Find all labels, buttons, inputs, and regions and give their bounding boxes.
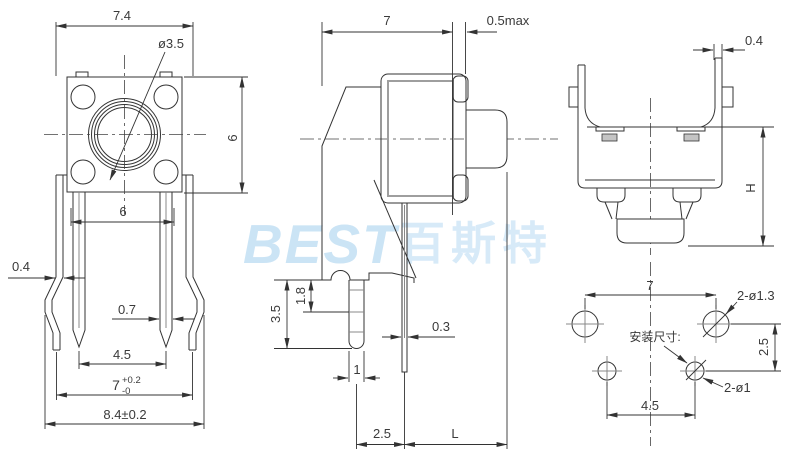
dim-cover-gap: 0.5max [466, 13, 530, 74]
callout-label-clip-holes: 2-ø1.3 [737, 288, 775, 303]
dim-wall-thickness: 0.4 [693, 33, 763, 60]
dim-pin-thickness: 0.3 [382, 319, 455, 337]
dim-row-spacing: 2.5 [706, 324, 781, 371]
dim-pin-hole-pitch: 4.5 [607, 382, 695, 419]
switch-body-inner [388, 81, 453, 196]
dim-label-leg-width: 1 [353, 362, 360, 377]
top-tab [76, 72, 88, 77]
watermark-chinese: 百斯特 [400, 218, 553, 269]
side-ear-left [569, 87, 578, 107]
dim-label-pin-pitch: 4.5 [113, 347, 131, 362]
dim-leg-width: 1 [333, 351, 380, 382]
dim-label-foot-span-tol-minus: -0 [122, 386, 130, 397]
dim-label-overall-width: 8.4±0.2 [103, 407, 146, 422]
clip-leg-left [45, 175, 67, 350]
dim-label-stem-height: H [743, 183, 758, 192]
clip-leg-right [182, 175, 204, 350]
dim-label-button-diameter: ø3.5 [158, 36, 184, 51]
corner-rivet [154, 85, 178, 109]
bracket-mount-leg [349, 280, 364, 349]
dim-label-pin-to-leg: 2.5 [373, 426, 391, 441]
top-view: 0.4 H [569, 33, 774, 255]
dim-pin-span: 6 [71, 204, 174, 226]
mounting-caption-label: 安装尺寸: [629, 329, 680, 344]
pin-right [160, 192, 172, 347]
plunger-top [617, 219, 684, 243]
dim-label-slot-depth: 1.8 [293, 287, 308, 305]
dim-pin-width: 0.7 [112, 302, 194, 319]
watermark: BEST 百斯特 [243, 213, 553, 275]
dim-bracket-depth: 3.5 [268, 280, 352, 349]
dim-body-height: 6 [184, 77, 248, 193]
dim-label-pin-width: 0.7 [118, 302, 136, 317]
plunger-side [466, 110, 507, 168]
dim-label-bracket-depth: 3.5 [268, 305, 283, 323]
technical-drawing: BEST 百斯特 [0, 0, 792, 454]
dim-slot-depth: 1.8 [293, 280, 349, 312]
feet-and-pins [597, 188, 701, 219]
dim-label-pin-span: 6 [119, 204, 126, 219]
dim-label-wall-thickness: 0.4 [745, 33, 763, 48]
dim-label-foot-span: 7 [112, 377, 120, 393]
dim-label-clip-thickness: 0.4 [12, 259, 30, 274]
corner-rivet [154, 160, 178, 184]
dim-label-body-width: 7 [383, 13, 390, 28]
pin-hole-right [680, 356, 710, 386]
mounting-caption: 安装尺寸: [629, 329, 687, 363]
dim-pin-pitch: 4.5 [79, 347, 166, 369]
mounting-layout: 7 2.5 4.5 2-ø1.3 2-ø1 安装尺寸: [566, 262, 781, 446]
corner-rivet [71, 160, 95, 184]
corner-rivet [71, 85, 95, 109]
dim-label-foot-span-tol-plus: +0.2 [122, 375, 141, 386]
callout-clip-holes: 2-ø1.3 [726, 288, 775, 314]
top-tab [160, 72, 172, 77]
dim-label-pin-thickness: 0.3 [432, 319, 450, 334]
dim-label-clip-hole-pitch: 7 [646, 278, 653, 293]
dim-label-pin-hole-pitch: 4.5 [641, 398, 659, 413]
side-ear-right [722, 87, 733, 107]
dim-label-bracket-width: 7.4 [113, 8, 131, 23]
clip-hole-left [566, 305, 604, 343]
dim-pin-to-leg: 2.5 [357, 372, 405, 449]
pin-hole-left [592, 356, 622, 386]
dim-overall-width: 8.4±0.2 [45, 315, 204, 429]
callout-label-pin-holes: 2-ø1 [724, 380, 751, 395]
drawing-sheet: BEST 百斯特 [0, 0, 792, 454]
dim-stem-length: L [405, 172, 508, 449]
dim-label-stem-length: L [451, 426, 458, 441]
pin-left [73, 192, 85, 347]
dim-stem-height: H [688, 127, 774, 246]
dim-label-body-height: 6 [225, 134, 240, 141]
bracket-frame [569, 58, 733, 188]
front-view: 7.4 ø3.5 6 6 0.4 0.7 [8, 8, 248, 429]
dim-label-cover-gap: 0.5max [487, 13, 530, 28]
callout-pin-holes: 2-ø1 [703, 378, 751, 395]
dim-label-row-spacing: 2.5 [756, 338, 771, 356]
